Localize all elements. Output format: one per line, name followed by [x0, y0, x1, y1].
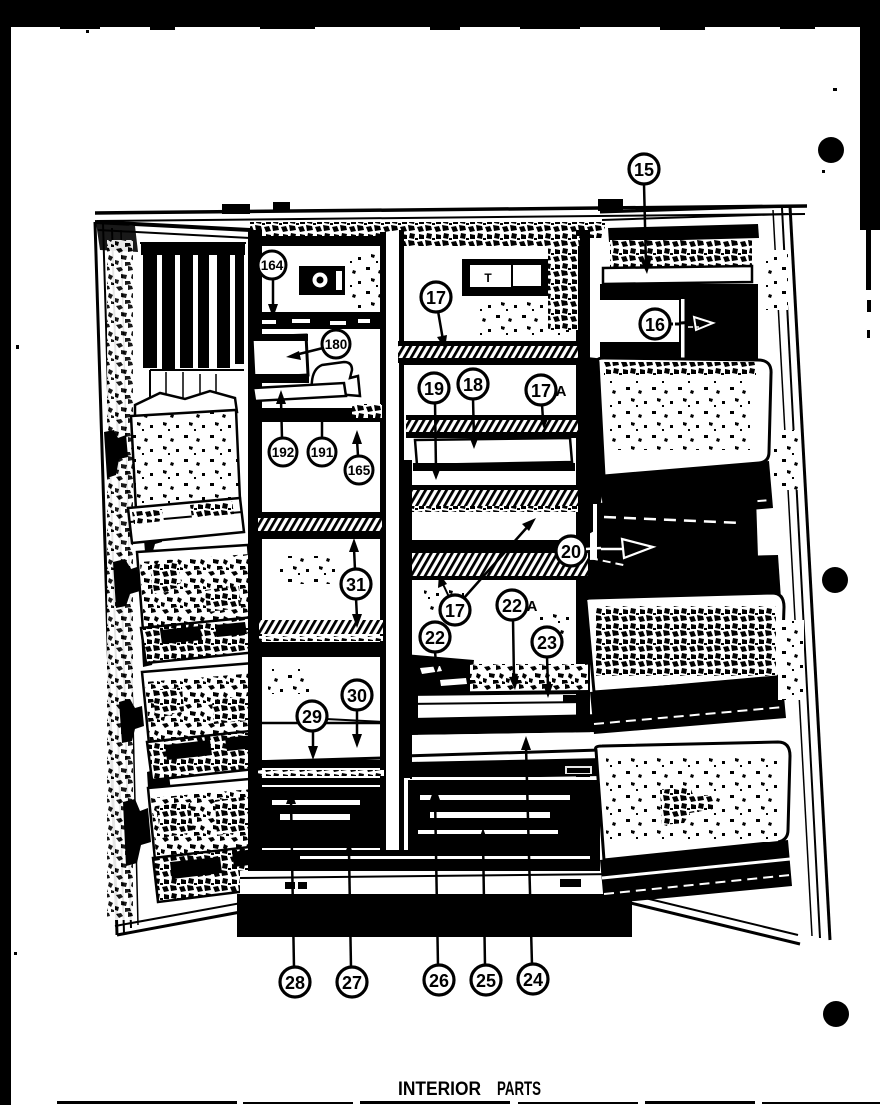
svg-text:17: 17 [445, 601, 465, 621]
svg-text:T: T [484, 271, 492, 285]
svg-text:25: 25 [476, 971, 496, 991]
svg-text:29: 29 [302, 707, 322, 727]
svg-text:22: 22 [502, 596, 522, 616]
svg-text:INTERIOR: INTERIOR [398, 1079, 481, 1100]
svg-text:20: 20 [561, 542, 581, 562]
svg-text:191: 191 [311, 445, 334, 460]
svg-text:19: 19 [424, 379, 444, 399]
svg-text:16: 16 [645, 315, 665, 335]
svg-text:192: 192 [272, 445, 295, 460]
svg-text:22: 22 [425, 628, 445, 648]
svg-text:180: 180 [325, 337, 348, 352]
svg-text:26: 26 [429, 971, 449, 991]
svg-text:28: 28 [285, 973, 305, 993]
svg-text:24: 24 [523, 970, 543, 990]
svg-text:27: 27 [342, 973, 362, 993]
svg-text:30: 30 [347, 686, 367, 706]
svg-text:164: 164 [261, 258, 284, 273]
svg-text:A: A [527, 598, 538, 615]
svg-text:17: 17 [531, 381, 551, 401]
svg-text:165: 165 [348, 463, 371, 478]
svg-text:31: 31 [346, 575, 366, 595]
svg-text:A: A [556, 383, 567, 400]
svg-text:17: 17 [426, 288, 446, 308]
svg-text:PARTS: PARTS [497, 1079, 541, 1100]
svg-text:18: 18 [463, 375, 483, 395]
svg-text:15: 15 [634, 160, 654, 180]
svg-text:23: 23 [537, 633, 557, 653]
